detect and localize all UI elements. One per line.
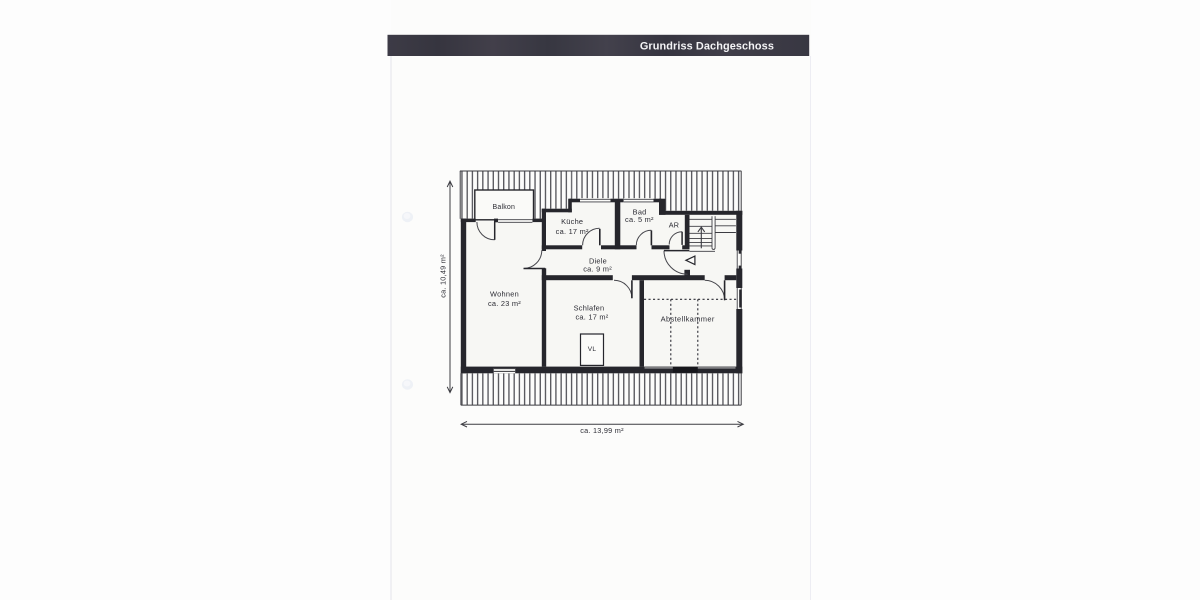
svg-text:ca. 17 m²: ca. 17 m² <box>556 227 589 236</box>
svg-text:ca. 23 m²: ca. 23 m² <box>488 299 521 308</box>
svg-text:Wohnen: Wohnen <box>490 290 519 299</box>
svg-text:Küche: Küche <box>561 217 583 226</box>
svg-text:AR: AR <box>669 220 680 229</box>
svg-text:VL: VL <box>588 346 597 353</box>
svg-text:ca. 17 m²: ca. 17 m² <box>575 312 608 321</box>
svg-text:Grundriss Dachgeschoss: Grundriss Dachgeschoss <box>640 40 774 52</box>
svg-text:ca. 10,49 m²: ca. 10,49 m² <box>438 254 447 298</box>
svg-text:ca. 13,99 m²: ca. 13,99 m² <box>580 426 624 435</box>
svg-text:ca. 5 m²: ca. 5 m² <box>625 215 654 224</box>
svg-text:Abstellkammer: Abstellkammer <box>661 314 715 323</box>
svg-text:Balkon: Balkon <box>492 204 515 211</box>
svg-text:ca. 9 m²: ca. 9 m² <box>583 264 612 273</box>
